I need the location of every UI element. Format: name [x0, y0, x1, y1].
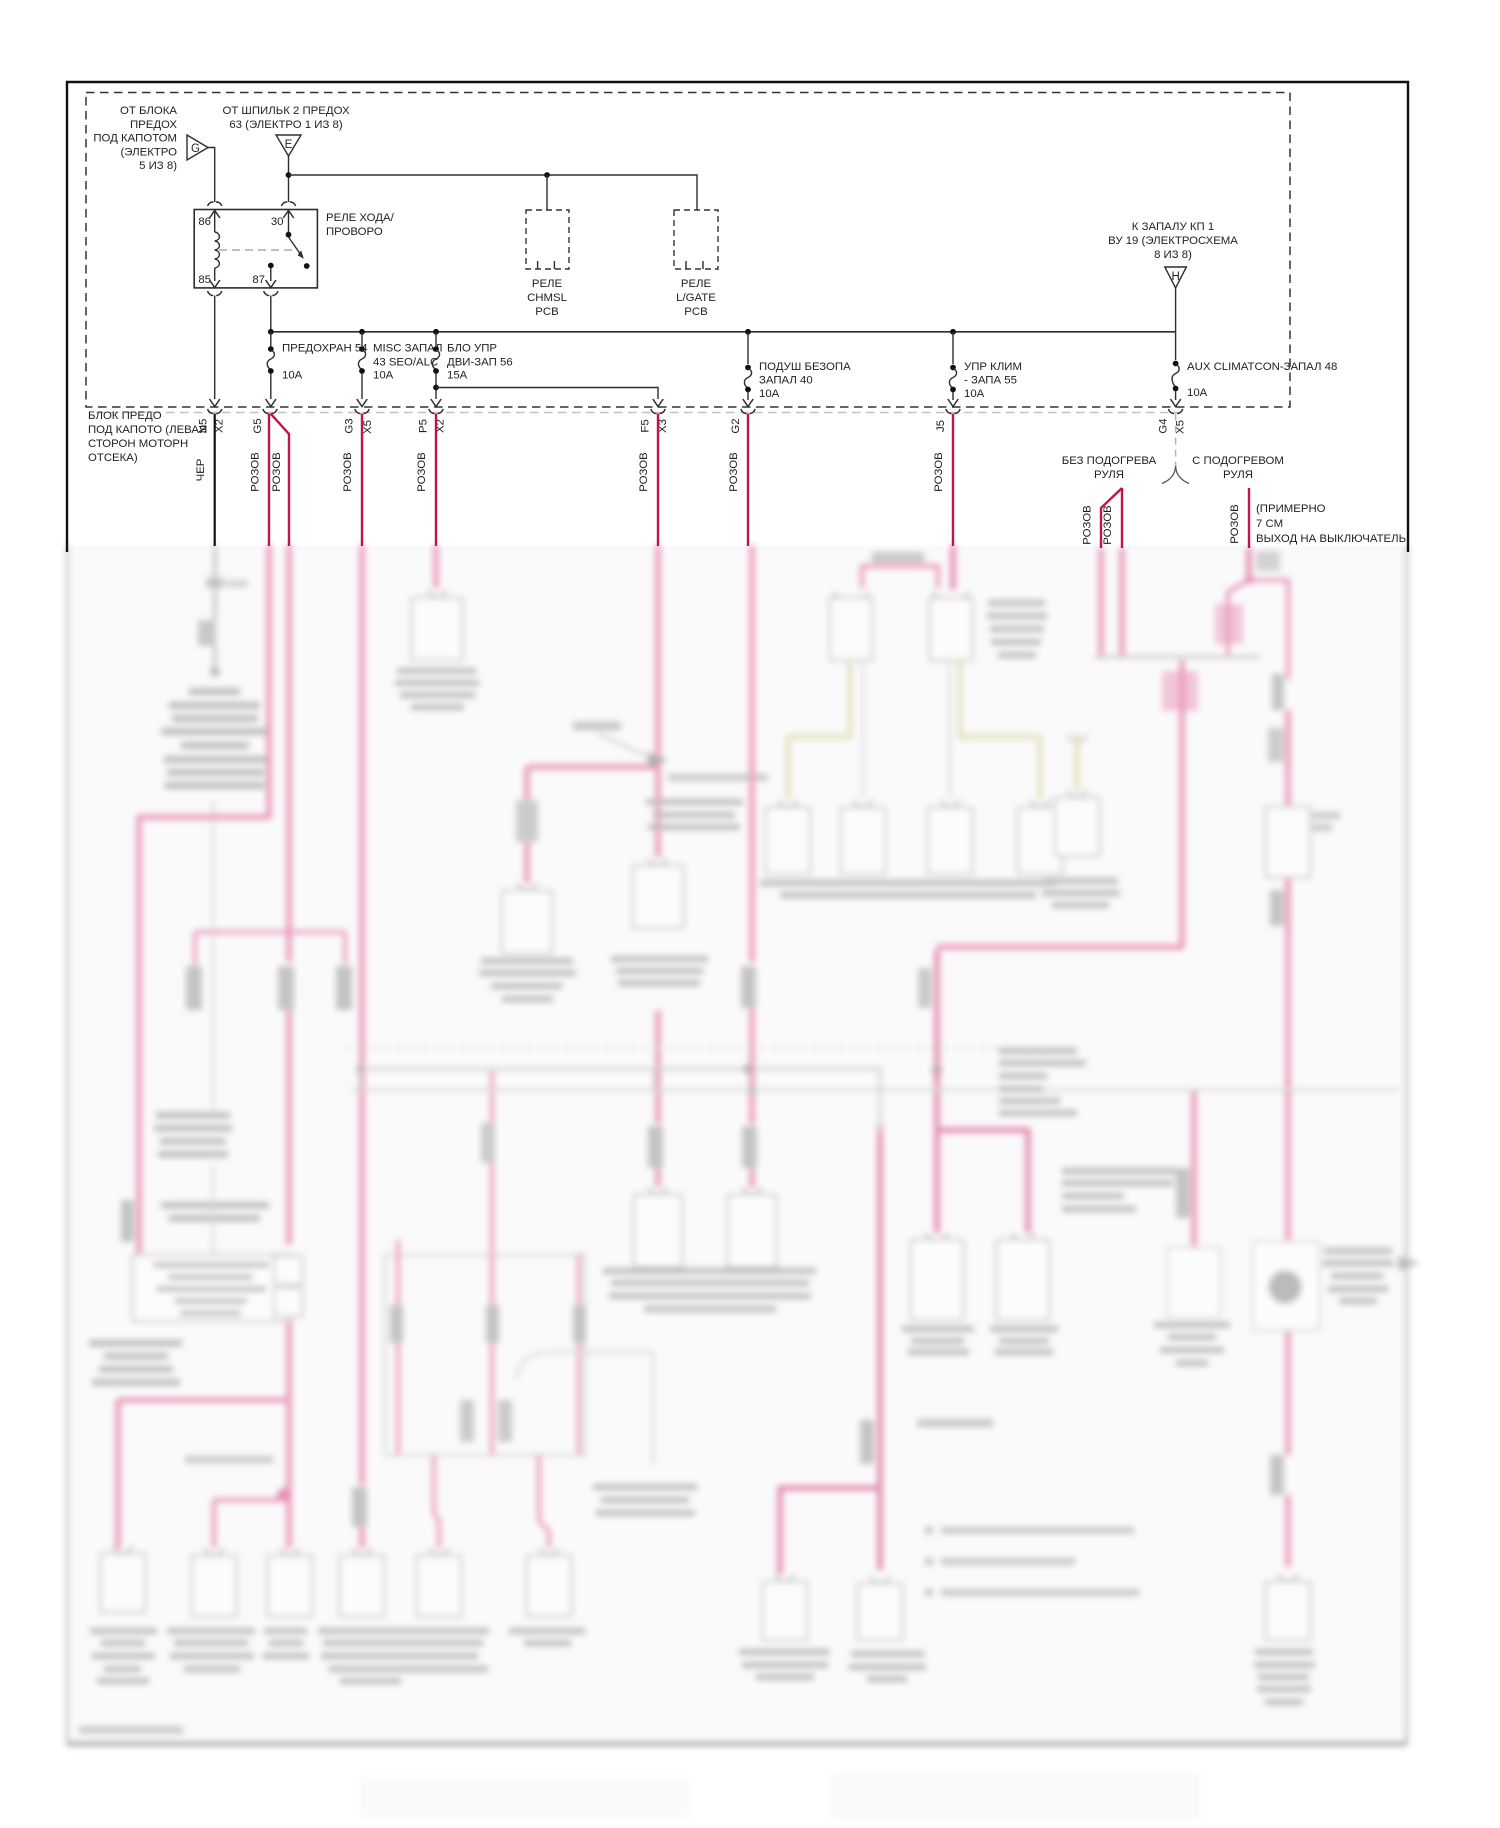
svg-text:ПРЕДОХРАН 54: ПРЕДОХРАН 54	[282, 343, 368, 355]
svg-text:ВЫХОД НА ВЫКЛЮЧАТЕЛЬ: ВЫХОД НА ВЫКЛЮЧАТЕЛЬ	[1256, 533, 1406, 545]
svg-text:G: G	[191, 143, 200, 155]
svg-text:87: 87	[252, 274, 265, 286]
svg-text:ВУ 19 (ЭЛЕКТРОСХЕМА: ВУ 19 (ЭЛЕКТРОСХЕМА	[1108, 235, 1238, 247]
svg-text:63 (ЭЛЕКТРО 1 ИЗ 8): 63 (ЭЛЕКТРО 1 ИЗ 8)	[229, 119, 343, 131]
svg-text:5 ИЗ 8): 5 ИЗ 8)	[139, 160, 177, 172]
svg-text:X5: X5	[1175, 420, 1187, 434]
svg-text:РОЗОВ: РОЗОВ	[1082, 505, 1094, 544]
svg-text:РУЛЯ: РУЛЯ	[1094, 469, 1124, 481]
svg-text:РЕЛЕ ХОДА/: РЕЛЕ ХОДА/	[326, 212, 395, 224]
svg-text:85: 85	[198, 274, 211, 286]
svg-text:РОЗОВ: РОЗОВ	[271, 452, 283, 491]
svg-text:ПРЕДОХ: ПРЕДОХ	[130, 119, 177, 131]
svg-text:AUX CLIMATCON-ЗАПАЛ 48: AUX CLIMATCON-ЗАПАЛ 48	[1187, 361, 1337, 373]
svg-text:N5: N5	[198, 419, 210, 434]
svg-text:10А: 10А	[282, 370, 303, 382]
svg-text:PCB: PCB	[535, 306, 558, 318]
svg-text:10А: 10А	[759, 388, 780, 400]
svg-text:РУЛЯ: РУЛЯ	[1223, 469, 1253, 481]
svg-text:РОЗОВ: РОЗОВ	[1229, 504, 1241, 543]
svg-text:P5: P5	[418, 419, 430, 433]
svg-text:ПРОВОРО: ПРОВОРО	[326, 226, 383, 238]
svg-text:(ПРИМЕРНО: (ПРИМЕРНО	[1256, 503, 1326, 515]
svg-text:CHMSL: CHMSL	[527, 292, 567, 304]
svg-text:ОТСЕКА): ОТСЕКА)	[88, 452, 138, 464]
svg-text:К ЗАПАЛУ КП 1: К ЗАПАЛУ КП 1	[1132, 221, 1214, 233]
svg-text:РОЗОВ: РОЗОВ	[416, 452, 428, 491]
svg-text:БЛОК ПРЕДО: БЛОК ПРЕДО	[88, 410, 162, 422]
svg-text:РОЗОВ: РОЗОВ	[342, 452, 354, 491]
svg-text:ОТ ШПИЛЬК 2 ПРЕДОХ: ОТ ШПИЛЬК 2 ПРЕДОХ	[222, 105, 349, 117]
svg-text:РЕЛЕ: РЕЛЕ	[681, 278, 712, 290]
svg-text:86: 86	[198, 216, 211, 228]
svg-text:С ПОДОГРЕВОМ: С ПОДОГРЕВОМ	[1192, 455, 1284, 467]
svg-text:10А: 10А	[1187, 387, 1208, 399]
svg-text:РОЗОВ: РОЗОВ	[250, 452, 262, 491]
svg-text:РОЗОВ: РОЗОВ	[638, 452, 650, 491]
svg-text:БЛО УПР: БЛО УПР	[447, 343, 497, 355]
svg-text:30: 30	[271, 216, 284, 228]
svg-text:- ЗАПА 55: - ЗАПА 55	[964, 375, 1017, 387]
svg-text:43 SEO/ALC: 43 SEO/ALC	[373, 357, 438, 369]
svg-text:F5: F5	[640, 419, 652, 432]
svg-text:X5: X5	[362, 420, 374, 434]
svg-text:J5: J5	[935, 420, 947, 432]
svg-text:G4: G4	[1158, 418, 1170, 433]
svg-text:G5: G5	[252, 418, 264, 433]
svg-text:MISC ЗАПАЛ: MISC ЗАПАЛ	[373, 343, 443, 355]
svg-text:15А: 15А	[447, 370, 468, 382]
svg-text:ОТ БЛОКА: ОТ БЛОКА	[120, 105, 177, 117]
svg-text:ПОД КАПОТО (ЛЕВАЯ: ПОД КАПОТО (ЛЕВАЯ	[88, 424, 207, 436]
svg-text:10А: 10А	[964, 388, 985, 400]
svg-text:ЧЕР: ЧЕР	[195, 459, 207, 482]
svg-text:E: E	[285, 139, 293, 151]
svg-text:G2: G2	[730, 418, 742, 433]
svg-text:L/GATE: L/GATE	[676, 292, 716, 304]
svg-text:H: H	[1171, 271, 1179, 283]
svg-text:ПОДУШ БЕЗОПА: ПОДУШ БЕЗОПА	[759, 361, 851, 373]
svg-text:РЕЛЕ: РЕЛЕ	[532, 278, 563, 290]
svg-text:СТОРОН МОТОРН: СТОРОН МОТОРН	[88, 438, 188, 450]
svg-text:PCB: PCB	[684, 306, 707, 318]
svg-text:7 СМ: 7 СМ	[1256, 518, 1283, 530]
svg-text:(ЭЛЕКТРО: (ЭЛЕКТРО	[121, 146, 178, 158]
svg-text:10А: 10А	[373, 370, 394, 382]
svg-text:УПР КЛИМ: УПР КЛИМ	[964, 361, 1022, 373]
svg-text:РОЗОВ: РОЗОВ	[1102, 505, 1114, 544]
svg-text:РОЗОВ: РОЗОВ	[728, 452, 740, 491]
svg-text:РОЗОВ: РОЗОВ	[933, 452, 945, 491]
svg-text:БЕЗ ПОДОГРЕВА: БЕЗ ПОДОГРЕВА	[1062, 455, 1157, 467]
svg-text:G3: G3	[344, 418, 356, 433]
svg-text:ЗАПАЛ 40: ЗАПАЛ 40	[759, 375, 813, 387]
svg-text:ДВИ-ЗАП 56: ДВИ-ЗАП 56	[447, 357, 513, 369]
svg-text:ПОД КАПОТОМ: ПОД КАПОТОМ	[93, 133, 177, 145]
svg-text:8 ИЗ 8): 8 ИЗ 8)	[1154, 249, 1192, 261]
